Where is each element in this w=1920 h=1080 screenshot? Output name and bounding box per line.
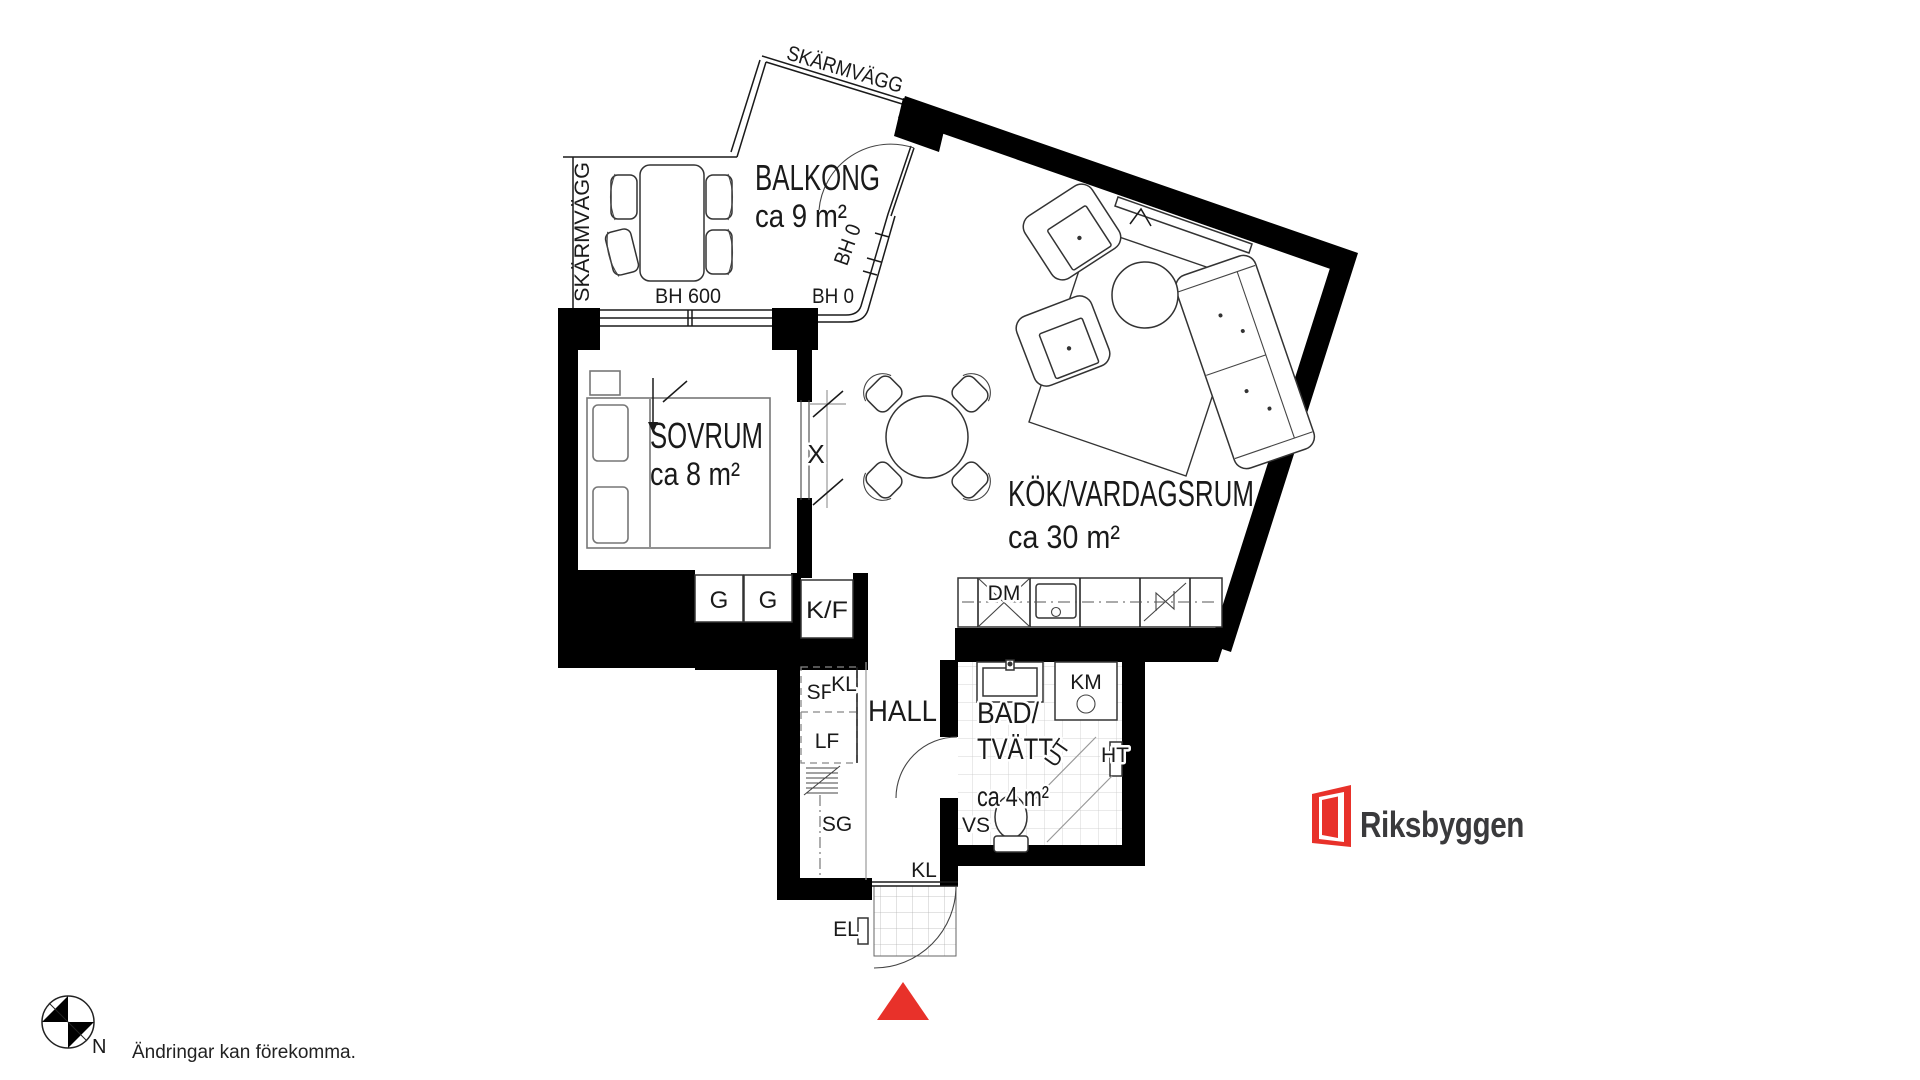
sill-height-front-label: BH 0 [812, 285, 854, 308]
entrance-marker [877, 982, 929, 1020]
bedroom-label: SOVRUM [650, 415, 763, 456]
wardrobe-g1-label: G [710, 587, 729, 614]
coat-rack [804, 766, 840, 795]
washing-machine-label: KM [1070, 671, 1102, 694]
balcony-label: BALKONG [755, 157, 880, 198]
compass [42, 996, 94, 1048]
living-room-area-label: ca 30 m² [1008, 519, 1120, 555]
armchair [1018, 179, 1125, 285]
hall-label: HALL [868, 695, 937, 728]
balcony-dining-set [603, 165, 732, 281]
armchair [1012, 292, 1113, 390]
hall-closet [801, 662, 868, 944]
entry-landing [874, 886, 956, 956]
dining-set [856, 366, 997, 507]
electrical-cabinet [858, 918, 868, 944]
bed-pillow [593, 405, 628, 461]
kitchen-sink [1036, 584, 1076, 618]
bathroom-label-line1: BAD/ [977, 697, 1040, 730]
sill-height-table-label: BH 600 [655, 285, 721, 308]
bedroom-window [598, 310, 774, 326]
floorplan-drawing: SKÄRMVÄGG SKÄRMVÄGG BALKONG ca 9 m² BH 6… [0, 0, 1920, 1080]
wardrobe-g2-label: G [759, 587, 778, 614]
hall-kl-bottom-label: KL [911, 859, 937, 882]
bed-pillow [593, 487, 628, 543]
water-cabinet-label: VS [962, 814, 990, 837]
sofa [1172, 252, 1318, 472]
compass-north-label: N [92, 1036, 106, 1058]
bedroom-area-label: ca 8 m² [650, 456, 740, 492]
screen-wall-top-label: SKÄRMVÄGG [784, 42, 906, 98]
sliding-door-marker-label: X [807, 439, 824, 469]
hall-lf-label: LF [815, 730, 840, 753]
floorplan-page: SKÄRMVÄGG SKÄRMVÄGG BALKONG ca 9 m² BH 6… [0, 0, 1920, 1080]
hall-el-label: EL [833, 918, 859, 941]
hall-kl-top-label: KL [831, 673, 857, 696]
living-room-label: KÖK/VARDAGSRUM [1008, 473, 1254, 514]
riksbyggen-logo: Riksbyggen [1312, 785, 1524, 847]
balcony-table [640, 165, 704, 281]
riksbyggen-logo-text: Riksbyggen [1360, 804, 1524, 845]
hall-sg-label: SG [822, 813, 852, 836]
balcony-chair [611, 174, 638, 220]
bedside-table [590, 371, 620, 395]
balcony-chair [603, 227, 640, 278]
bathroom-sink [977, 660, 1043, 702]
coffee-table [1112, 262, 1178, 328]
dishwasher-label: DM [988, 582, 1021, 605]
balcony-chair [706, 229, 733, 275]
riksbyggen-logo-icon [1312, 785, 1351, 847]
screen-wall-left-label: SKÄRMVÄGG [571, 162, 594, 302]
dining-table [886, 396, 968, 478]
balcony-chair [706, 174, 733, 220]
hall-sf-label: SF [807, 681, 834, 704]
disclaimer-text: Ändringar kan förekomma. [132, 1042, 356, 1063]
fridge-freezer-label: K/F [806, 597, 848, 624]
towel-dryer-label: HT [1101, 744, 1129, 767]
bathroom-door-arc [896, 737, 957, 798]
bathroom-label-line2: TVÄTT [977, 733, 1053, 766]
bathroom-area-label: ca 4 m² [977, 781, 1049, 812]
balcony-area-label: ca 9 m² [755, 198, 847, 234]
